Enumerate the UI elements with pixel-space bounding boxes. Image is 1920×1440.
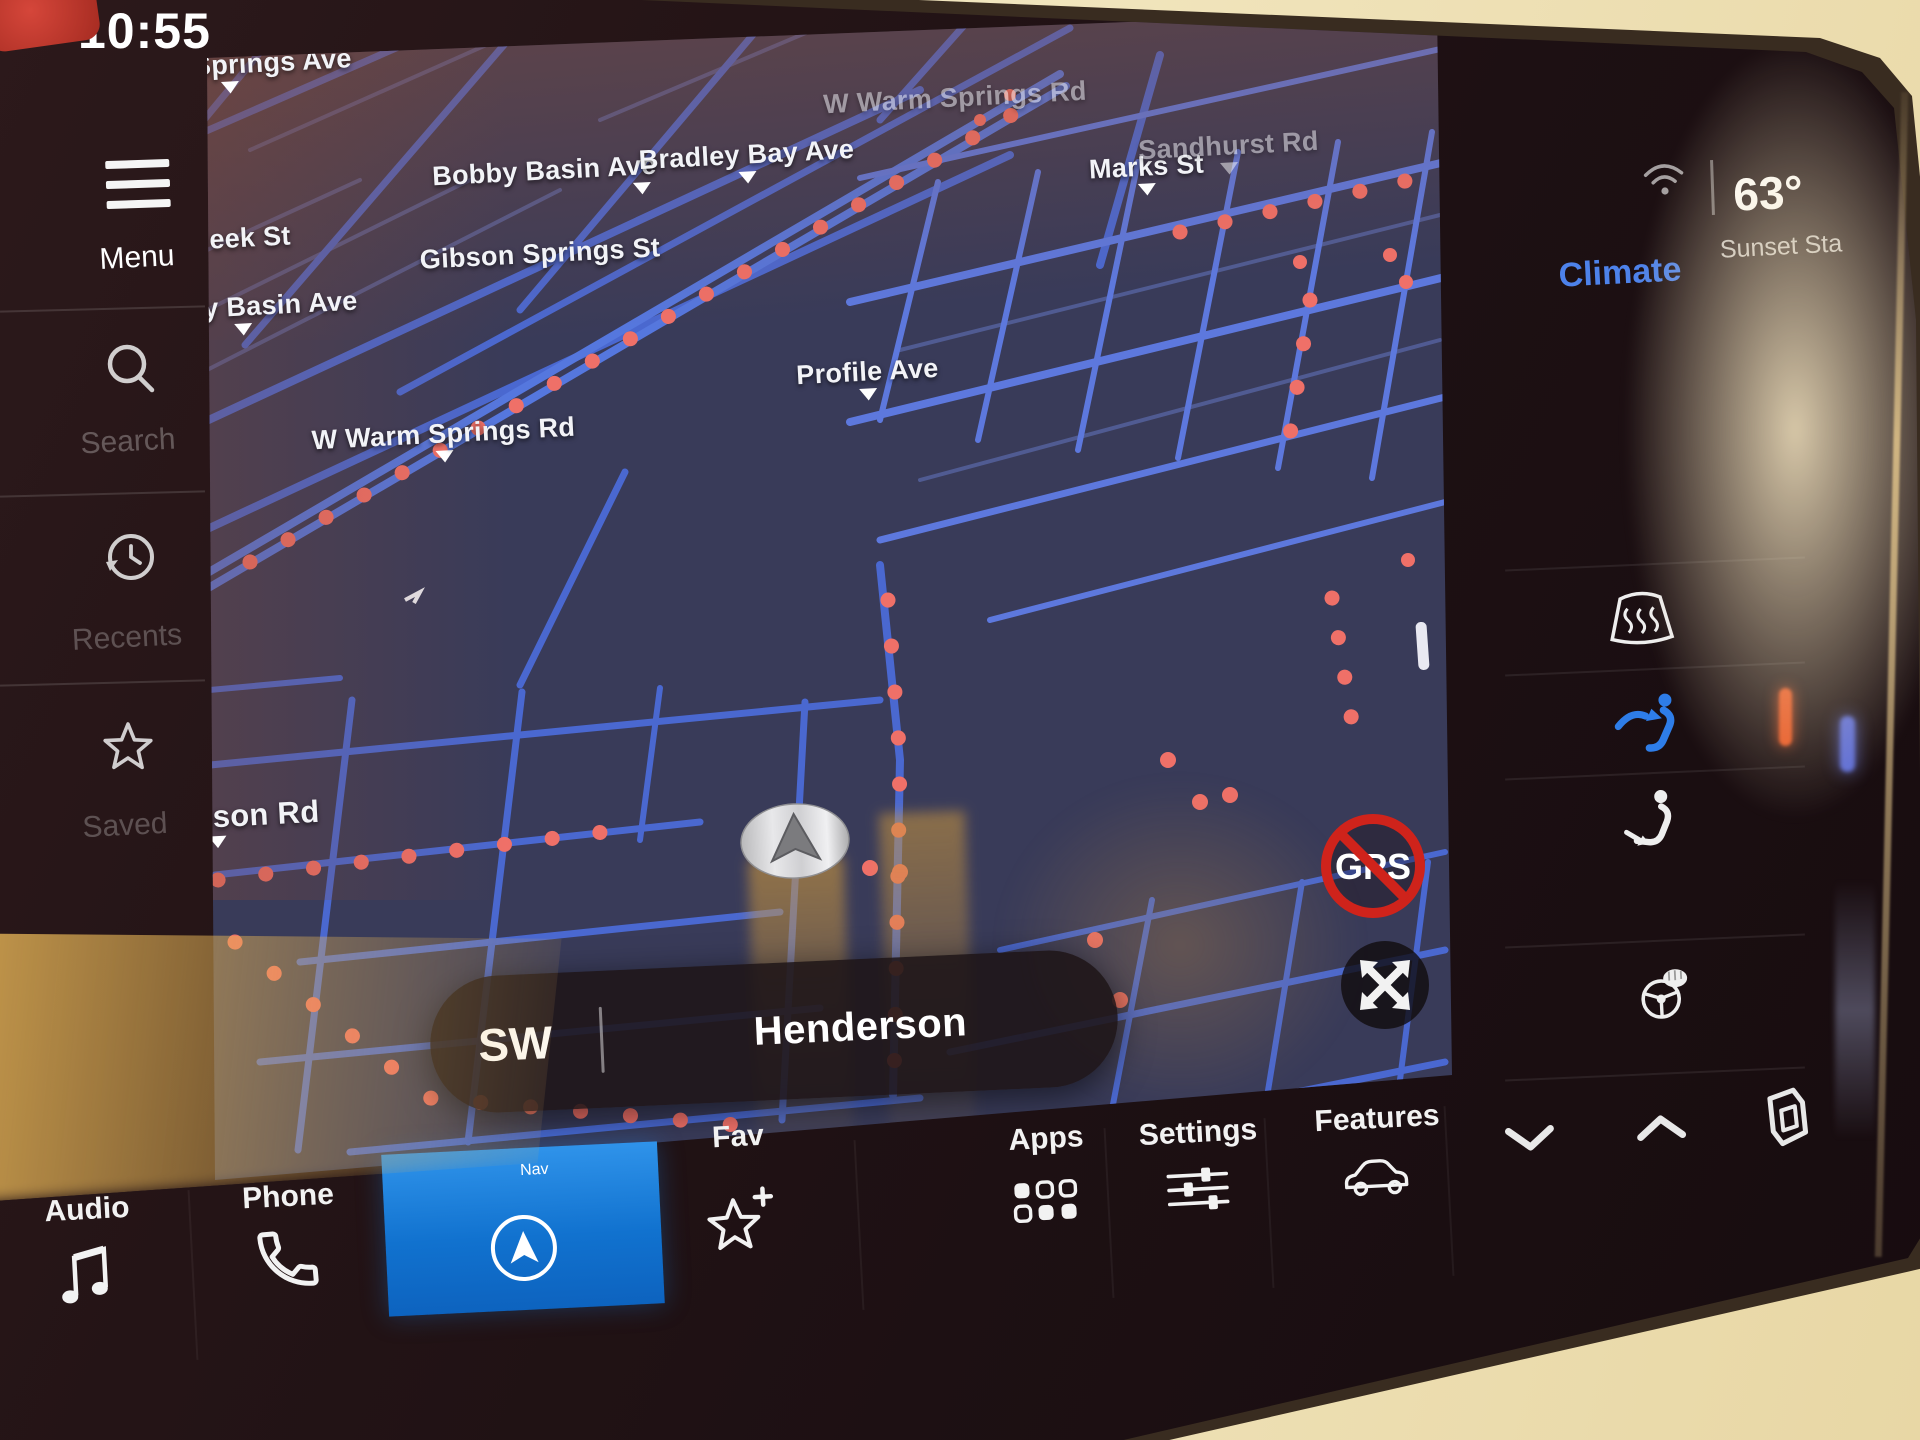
current-location: Henderson xyxy=(602,993,1119,1061)
sidebar-divider xyxy=(0,490,205,497)
vent-feet-icon[interactable] xyxy=(1614,786,1690,856)
star-plus-icon xyxy=(696,1178,780,1262)
street-label: oson Rd xyxy=(193,794,322,859)
infotainment-screen: Barby Springs Ave Bobby Basin Ave Bradle… xyxy=(0,0,1920,1440)
dock-item-features[interactable]: Features xyxy=(1289,1102,1465,1280)
reflection-streak-bezel xyxy=(1835,880,1875,1140)
sidebar-item-recents[interactable]: Recents xyxy=(71,618,183,658)
dock-item-apps[interactable]: Apps xyxy=(958,1122,1134,1300)
street-label: Profile Ave xyxy=(796,353,941,413)
vent-face-icon[interactable] xyxy=(1610,686,1686,756)
defrost-windshield-icon[interactable] xyxy=(1606,582,1676,650)
map-pin-icon xyxy=(221,81,240,103)
layers-icon[interactable] xyxy=(1755,1084,1819,1152)
panel-divider xyxy=(1505,556,1805,571)
panel-divider xyxy=(1505,765,1805,780)
map-pin-icon xyxy=(738,171,757,193)
street-label: Bradley Bay Ave xyxy=(638,134,856,198)
dock-divider xyxy=(188,1190,199,1360)
history-clock-icon[interactable] xyxy=(100,526,162,588)
music-note-icon xyxy=(51,1235,123,1311)
dock-item-nav[interactable]: Nav xyxy=(381,1141,665,1316)
chevron-up-icon[interactable] xyxy=(1627,1105,1695,1149)
heated-steering-wheel-icon[interactable] xyxy=(1622,956,1700,1034)
features-label: Features xyxy=(1314,1099,1441,1139)
sidebar-item-menu[interactable]: Menu xyxy=(99,239,176,277)
reflection-orange-bar xyxy=(1779,688,1792,746)
panel-divider xyxy=(1505,661,1805,676)
climate-label[interactable]: Climate xyxy=(1558,250,1683,295)
dock-item-phone[interactable]: Phone xyxy=(200,1180,376,1358)
dock-item-audio[interactable]: Audio xyxy=(0,1193,175,1371)
map-pin-icon xyxy=(435,450,454,472)
wifi-signal-icon xyxy=(1640,158,1688,202)
vehicle-arrow xyxy=(735,798,855,884)
map-pin-icon xyxy=(208,836,227,858)
sidebar-divider xyxy=(0,305,205,312)
dashboard-photo: Barby Springs Ave Bobby Basin Ave Bradle… xyxy=(0,0,1920,1440)
gps-signal-lost-badge: GPS xyxy=(1313,806,1433,926)
dock-item-settings[interactable]: Settings xyxy=(1110,1116,1286,1294)
heading-direction: SW xyxy=(429,1012,601,1074)
sidebar-item-saved[interactable]: Saved xyxy=(82,807,169,845)
phone-icon xyxy=(253,1224,323,1294)
outside-temperature: 63° xyxy=(1732,164,1804,222)
map-pin-icon xyxy=(234,323,253,345)
sliders-icon xyxy=(1159,1158,1237,1220)
car-icon xyxy=(1336,1142,1418,1202)
nav-compass-icon xyxy=(480,1204,568,1292)
sidebar-divider xyxy=(0,679,205,686)
dock-item-fav[interactable]: Fav xyxy=(650,1120,826,1298)
radio-station: Sunset Sta xyxy=(1719,229,1843,264)
status-divider xyxy=(1710,160,1715,215)
settings-label: Settings xyxy=(1138,1113,1258,1153)
street-label: y Basin Ave xyxy=(203,285,360,346)
panel-divider xyxy=(1505,933,1805,948)
phone-label: Phone xyxy=(241,1178,334,1217)
panel-divider xyxy=(1505,1066,1805,1081)
nav-label: Nav xyxy=(520,1161,549,1180)
dock-divider xyxy=(854,1140,865,1310)
sidebar-item-search[interactable]: Search xyxy=(80,423,177,462)
map-pin-icon xyxy=(859,388,878,410)
fav-label: Fav xyxy=(711,1119,764,1156)
audio-label: Audio xyxy=(44,1191,131,1229)
expand-arrows-icon[interactable] xyxy=(1338,938,1432,1032)
reflection-blue-bar xyxy=(1840,716,1855,772)
app-grid-icon xyxy=(1004,1170,1088,1232)
star-icon[interactable] xyxy=(98,718,158,778)
search-icon[interactable] xyxy=(100,338,164,402)
street-label: Sandhurst Rd xyxy=(1137,126,1320,188)
apps-label: Apps xyxy=(1008,1120,1085,1158)
map-pin-icon xyxy=(1220,162,1239,184)
street-label: eek St xyxy=(209,220,292,255)
hamburger-menu-icon[interactable] xyxy=(104,154,172,216)
chevron-down-icon[interactable] xyxy=(1496,1116,1564,1160)
